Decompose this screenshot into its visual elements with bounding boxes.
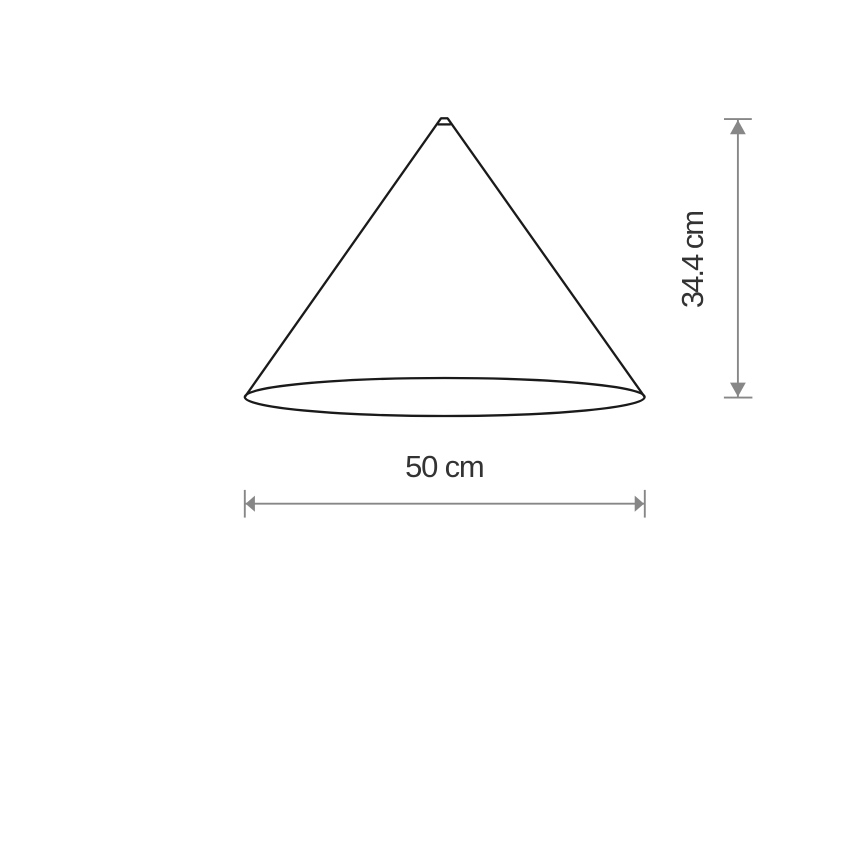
svg-text:50 cm: 50 cm	[405, 449, 483, 484]
svg-text:34.4 cm: 34.4 cm	[675, 212, 710, 308]
